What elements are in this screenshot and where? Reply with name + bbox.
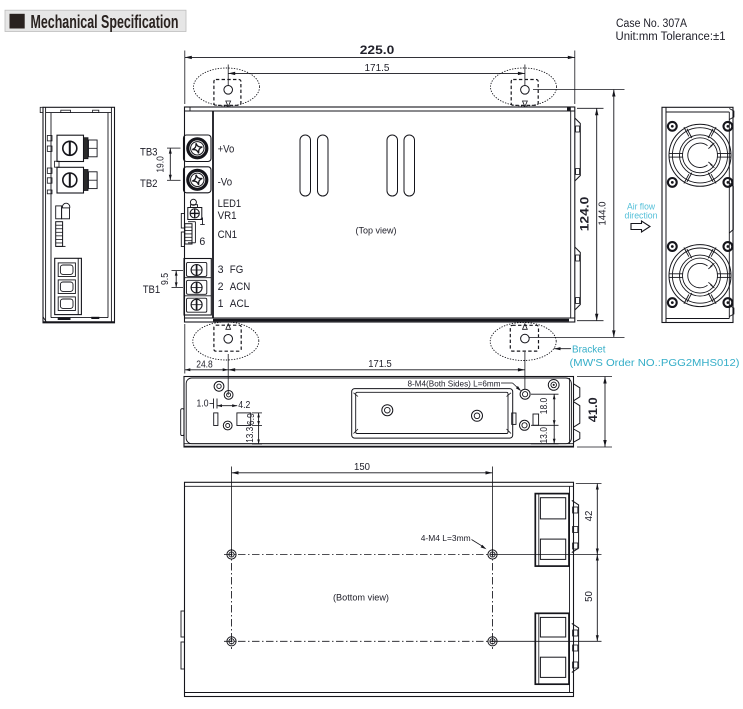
svg-text:CN1: CN1 (218, 229, 238, 241)
svg-text:-Vo: -Vo (218, 176, 233, 188)
svg-text:41.0: 41.0 (586, 397, 600, 422)
svg-text:TB1: TB1 (143, 284, 161, 296)
svg-text:1: 1 (199, 216, 205, 228)
svg-text:ACL: ACL (230, 298, 250, 310)
svg-text:13.0: 13.0 (539, 427, 550, 444)
svg-text:FG: FG (230, 264, 244, 276)
svg-text:171.5: 171.5 (365, 63, 390, 74)
svg-text:1.0: 1.0 (197, 398, 209, 409)
svg-text:(MW'S Order NO.:PGG2MHS012): (MW'S Order NO.:PGG2MHS012) (570, 357, 740, 369)
svg-text:225.0: 225.0 (360, 43, 395, 57)
svg-text:4.2: 4.2 (238, 400, 250, 411)
svg-text:144.0: 144.0 (597, 201, 608, 225)
svg-text:TB2: TB2 (140, 178, 158, 190)
svg-text:Mechanical Specification: Mechanical Specification (31, 12, 179, 32)
svg-text:3: 3 (218, 264, 224, 276)
svg-text:Unit:mm Tolerance:±1: Unit:mm Tolerance:±1 (616, 31, 726, 43)
svg-text:50: 50 (584, 591, 595, 602)
svg-text:(Bottom view): (Bottom view) (333, 593, 389, 603)
svg-text:LED1: LED1 (218, 198, 242, 210)
svg-text:6.9: 6.9 (246, 413, 257, 425)
svg-text:13.3: 13.3 (245, 426, 256, 442)
svg-text:24.8: 24.8 (196, 359, 213, 370)
svg-text:Case No. 307A: Case No. 307A (616, 18, 687, 30)
svg-text:1: 1 (218, 298, 224, 310)
svg-text:direction: direction (625, 210, 658, 220)
svg-text:VR1: VR1 (218, 210, 237, 222)
svg-text:42: 42 (584, 511, 595, 522)
svg-text:Bracket: Bracket (572, 344, 606, 356)
svg-text:8-M4(Both Sides) L=6mm: 8-M4(Both Sides) L=6mm (408, 378, 501, 388)
svg-text:18.0: 18.0 (539, 397, 550, 414)
svg-text:ACN: ACN (230, 281, 251, 293)
svg-text:124.0: 124.0 (578, 196, 592, 231)
svg-text:4-M4 L=3mm: 4-M4 L=3mm (421, 533, 471, 543)
svg-text:(Top view): (Top view) (356, 226, 397, 236)
svg-text:171.5: 171.5 (368, 359, 392, 370)
svg-text:150: 150 (354, 462, 371, 473)
svg-text:9.5: 9.5 (160, 273, 171, 285)
svg-text:6: 6 (199, 236, 205, 248)
svg-text:TB3: TB3 (140, 146, 158, 158)
svg-text:+Vo: +Vo (218, 143, 235, 155)
svg-text:2: 2 (218, 281, 224, 293)
